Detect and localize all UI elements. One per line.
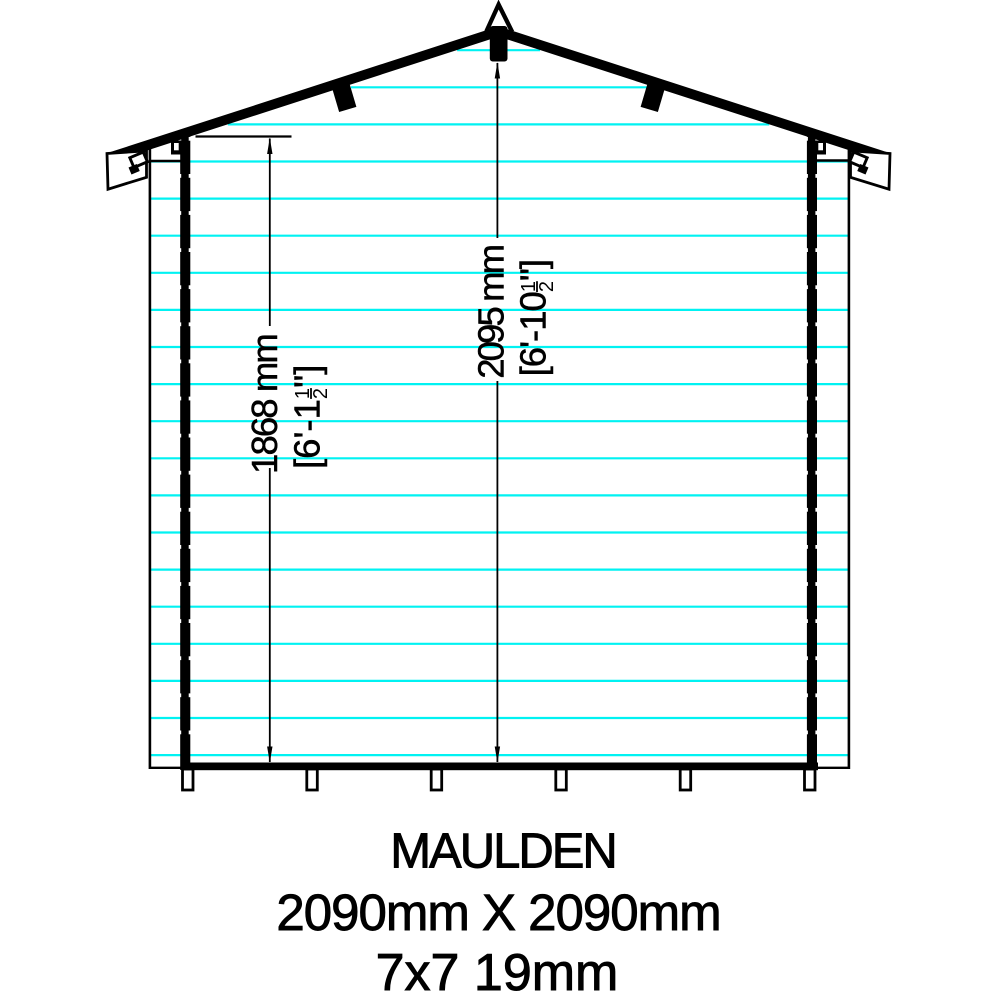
svg-text:[6'-10: [6'-10 bbox=[513, 292, 554, 376]
svg-text:MAULDEN: MAULDEN bbox=[390, 825, 616, 879]
svg-text:7x7 19mm: 7x7 19mm bbox=[376, 944, 619, 1000]
svg-text:2: 2 bbox=[310, 388, 332, 399]
svg-text:2: 2 bbox=[536, 281, 558, 292]
svg-text:[6'-1: [6'-1 bbox=[287, 399, 328, 469]
svg-text:1868 mm: 1868 mm bbox=[244, 335, 285, 474]
svg-text:"]: "] bbox=[287, 365, 328, 388]
svg-text:2090mm X 2090mm: 2090mm X 2090mm bbox=[276, 884, 720, 941]
svg-text:2095 mm: 2095 mm bbox=[471, 246, 512, 378]
svg-text:"]: "] bbox=[513, 260, 554, 281]
